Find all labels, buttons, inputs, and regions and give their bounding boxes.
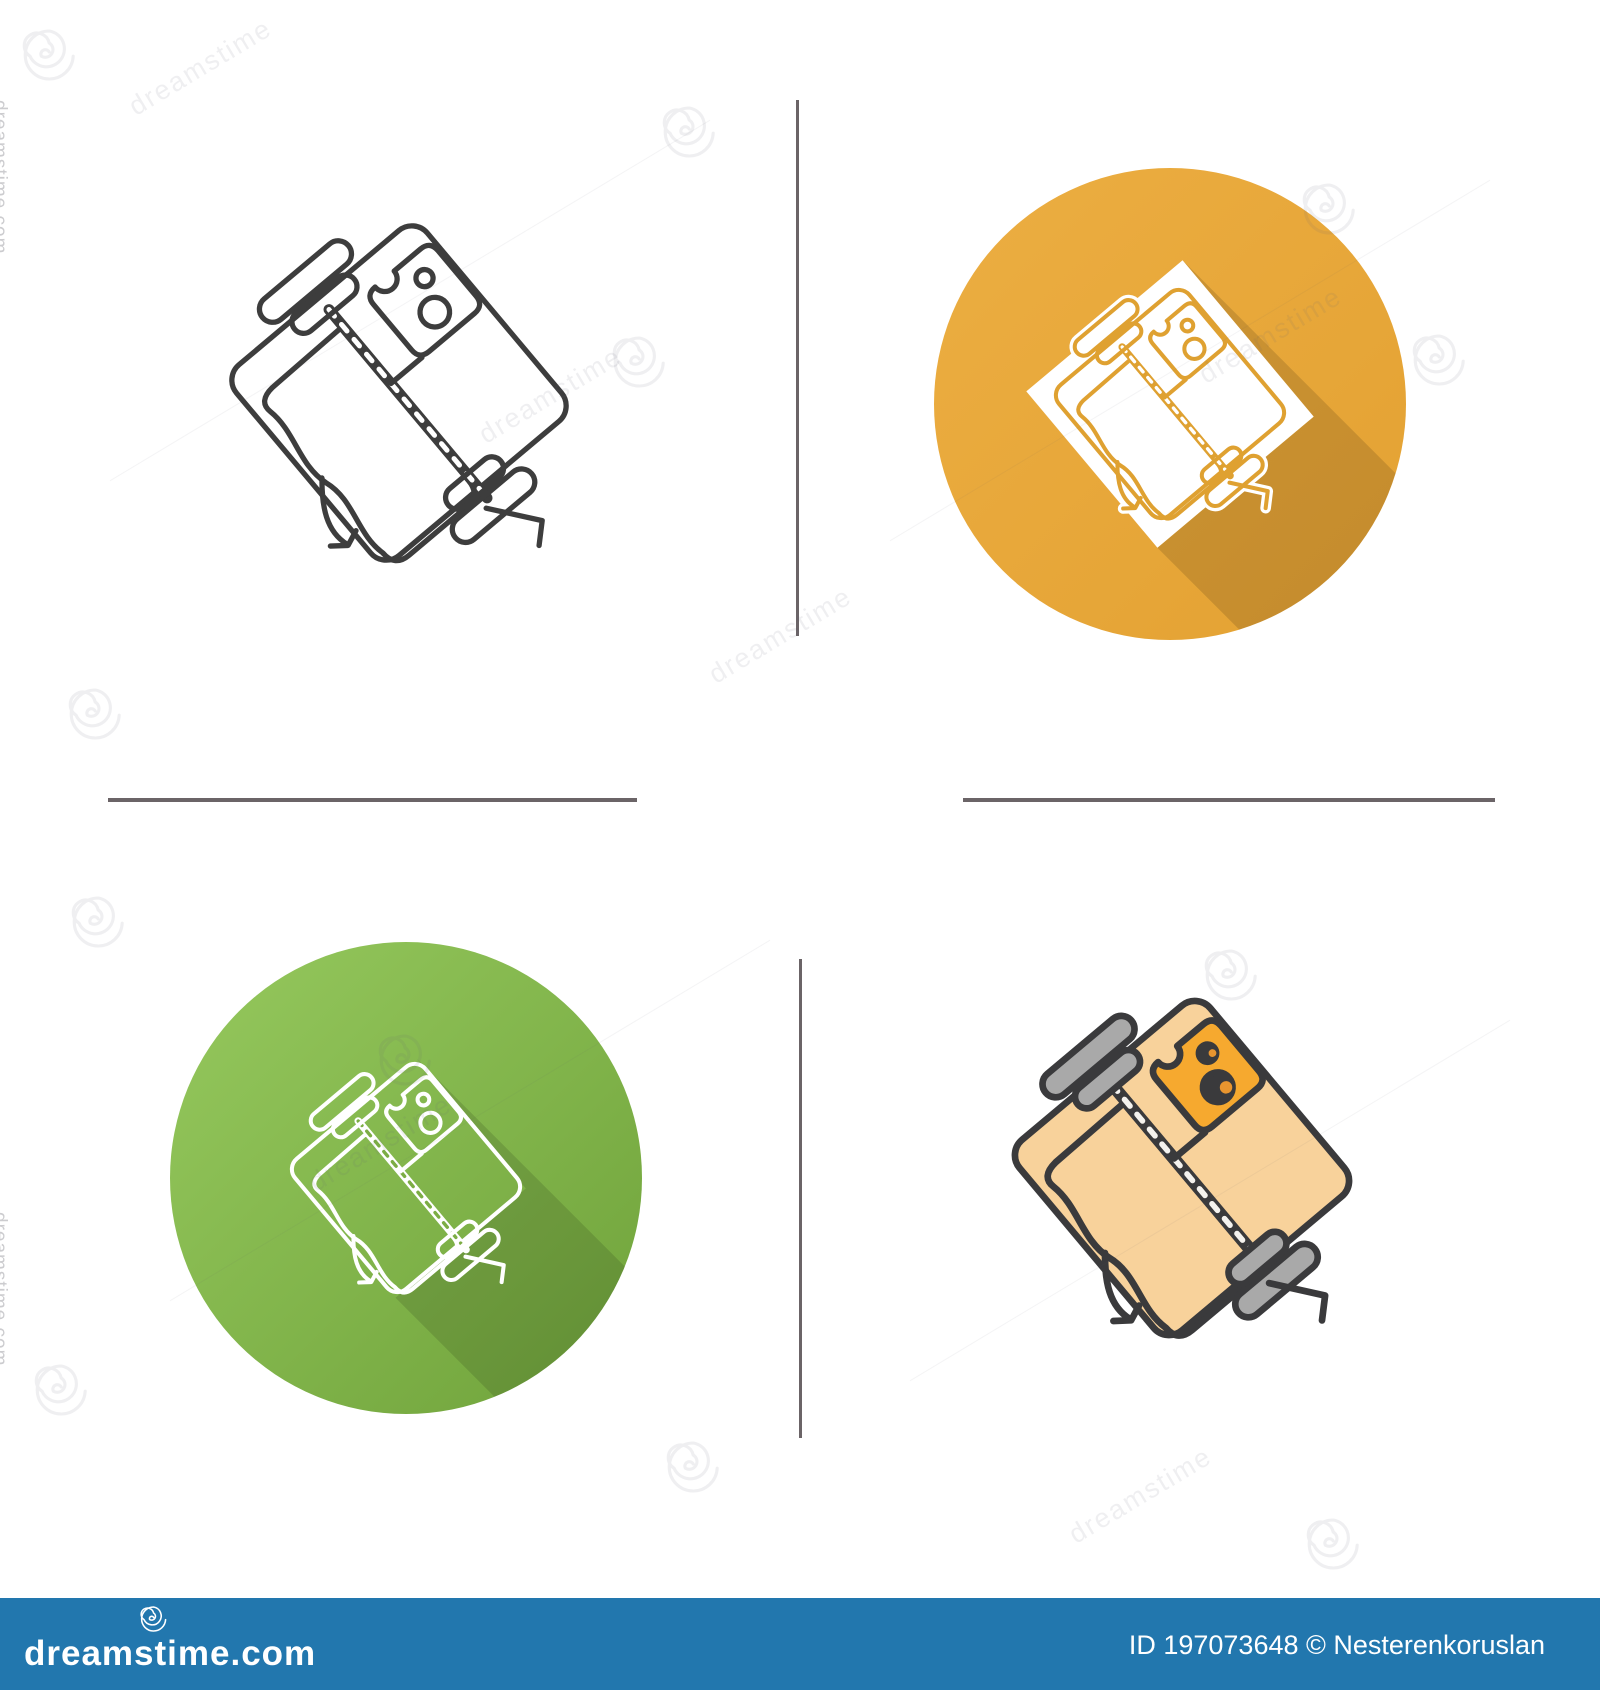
- stock-image-canvas: dreamstime dreamstime dreamstime dreamst…: [0, 0, 1600, 1690]
- mousetrap-color-icon: [972, 958, 1392, 1378]
- watermark-word: dreamstime: [704, 581, 858, 691]
- watermark-spiral-icon: [30, 1360, 90, 1420]
- watermark-spiral-icon: [64, 684, 124, 744]
- watermark-side-text: dreamstime.com: [0, 1212, 10, 1366]
- mousetrap-linear-icon: [189, 183, 609, 603]
- watermark-word: dreamstime: [124, 13, 278, 123]
- footer-logo-spiral-icon: [138, 1604, 168, 1634]
- watermark-spiral-icon: [662, 1437, 722, 1497]
- watermark-spiral-icon: [1408, 330, 1468, 390]
- footer-bar: dreamstime.com ID 197073648 © Nesterenko…: [0, 1598, 1600, 1690]
- watermark-spiral-icon: [608, 332, 668, 392]
- watermark-spiral-icon: [67, 892, 127, 952]
- divider-top-vertical: [796, 100, 799, 636]
- watermark-side-text: dreamstime.com: [0, 100, 10, 254]
- watermark-spiral-icon: [1302, 1514, 1362, 1574]
- divider-right-horizontal: [963, 798, 1495, 802]
- footer-logo-text: dreamstime.com: [24, 1634, 316, 1674]
- mousetrap-flat-glyph-icon: [930, 164, 1410, 644]
- footer-id-text: ID 197073648 © Nesterenkoruslan: [1129, 1630, 1545, 1661]
- divider-bottom-vertical: [799, 959, 802, 1438]
- watermark-word: dreamstime: [1064, 1441, 1218, 1551]
- divider-left-horizontal: [108, 798, 637, 802]
- mousetrap-green-circle-icon: [166, 938, 646, 1418]
- watermark-spiral-icon: [18, 25, 78, 85]
- watermark-spiral-icon: [658, 102, 718, 162]
